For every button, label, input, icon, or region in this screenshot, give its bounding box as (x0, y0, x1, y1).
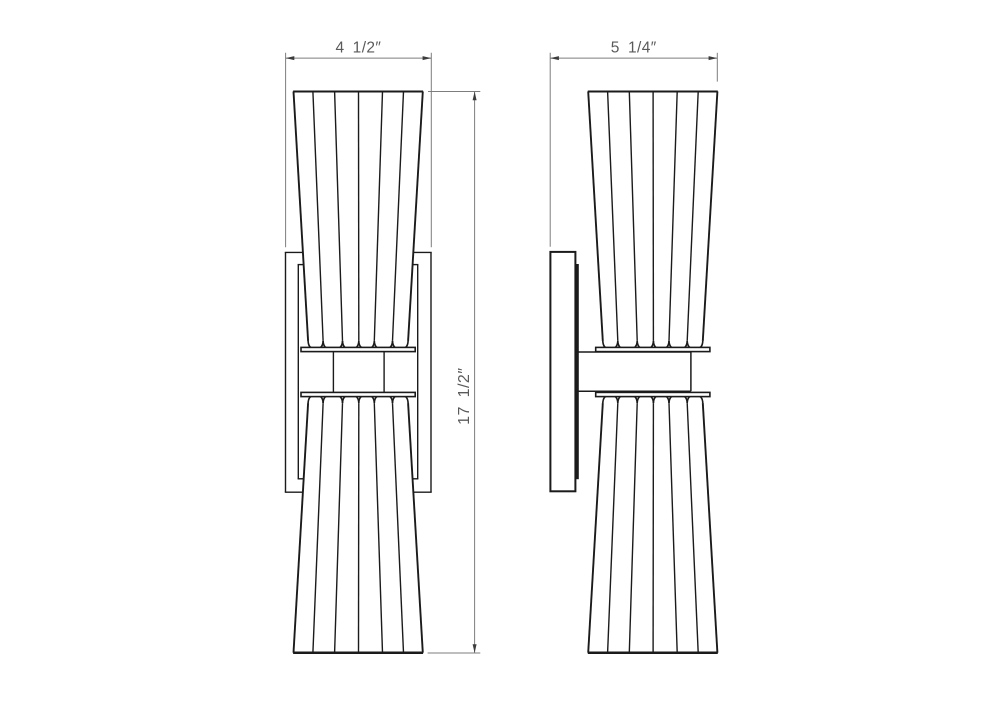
svg-text:17 1/2″: 17 1/2″ (456, 368, 473, 425)
svg-text:5 1/4″: 5 1/4″ (611, 40, 657, 57)
svg-text:4 1/2″: 4 1/2″ (335, 40, 381, 57)
